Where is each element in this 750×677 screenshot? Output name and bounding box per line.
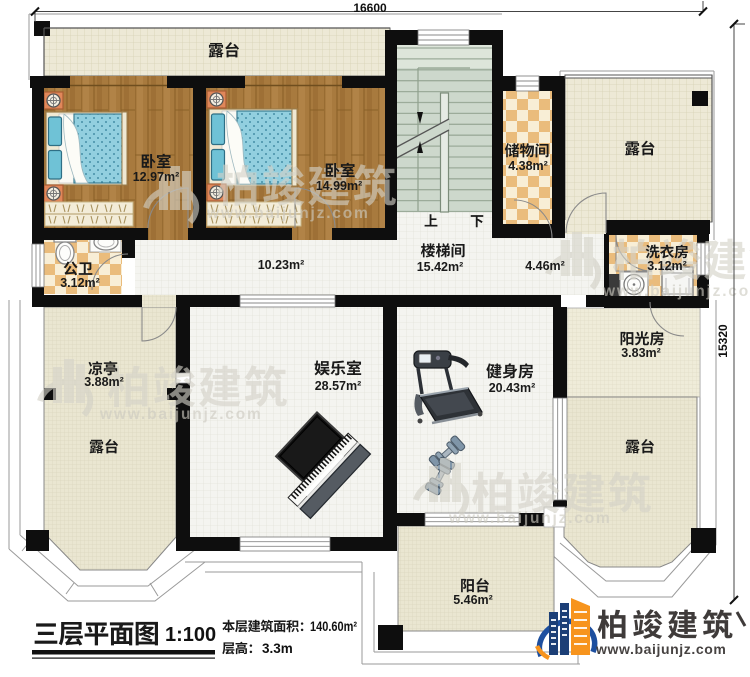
- svg-text:20.43m²: 20.43m²: [489, 381, 536, 395]
- svg-text:10.23m²: 10.23m²: [258, 258, 305, 272]
- svg-text:4.38m²: 4.38m²: [508, 159, 548, 173]
- svg-text:3.88m²: 3.88m²: [84, 375, 124, 389]
- svg-text:www.baijunjz.com: www.baijunjz.com: [99, 406, 263, 423]
- svg-text:www.baijunjz.com: www.baijunjz.com: [448, 510, 612, 527]
- svg-text:28.57m²: 28.57m²: [315, 379, 362, 393]
- svg-text:www.baijunjz.com: www.baijunjz.com: [602, 283, 750, 300]
- svg-text:16600: 16600: [353, 1, 387, 15]
- svg-text:15320: 15320: [716, 324, 730, 358]
- svg-text:5.46m²: 5.46m²: [453, 593, 493, 607]
- svg-text:www.baijunjz.com: www.baijunjz.com: [595, 641, 726, 657]
- svg-text:15.42m²: 15.42m²: [417, 260, 464, 274]
- svg-text:4.46m²: 4.46m²: [525, 259, 565, 273]
- svg-text:3.3m: 3.3m: [262, 641, 293, 656]
- svg-text:3.12m²: 3.12m²: [647, 259, 687, 273]
- svg-text:14.99m²: 14.99m²: [316, 179, 363, 193]
- svg-text:140.60m²: 140.60m²: [310, 618, 357, 634]
- svg-text:www.baijunjz.com: www.baijunjz.com: [206, 205, 370, 222]
- svg-text:3.12m²: 3.12m²: [60, 276, 100, 290]
- svg-text:1:100: 1:100: [165, 624, 216, 646]
- svg-text:3.83m²: 3.83m²: [621, 346, 661, 360]
- svg-text:12.97m²: 12.97m²: [133, 170, 180, 184]
